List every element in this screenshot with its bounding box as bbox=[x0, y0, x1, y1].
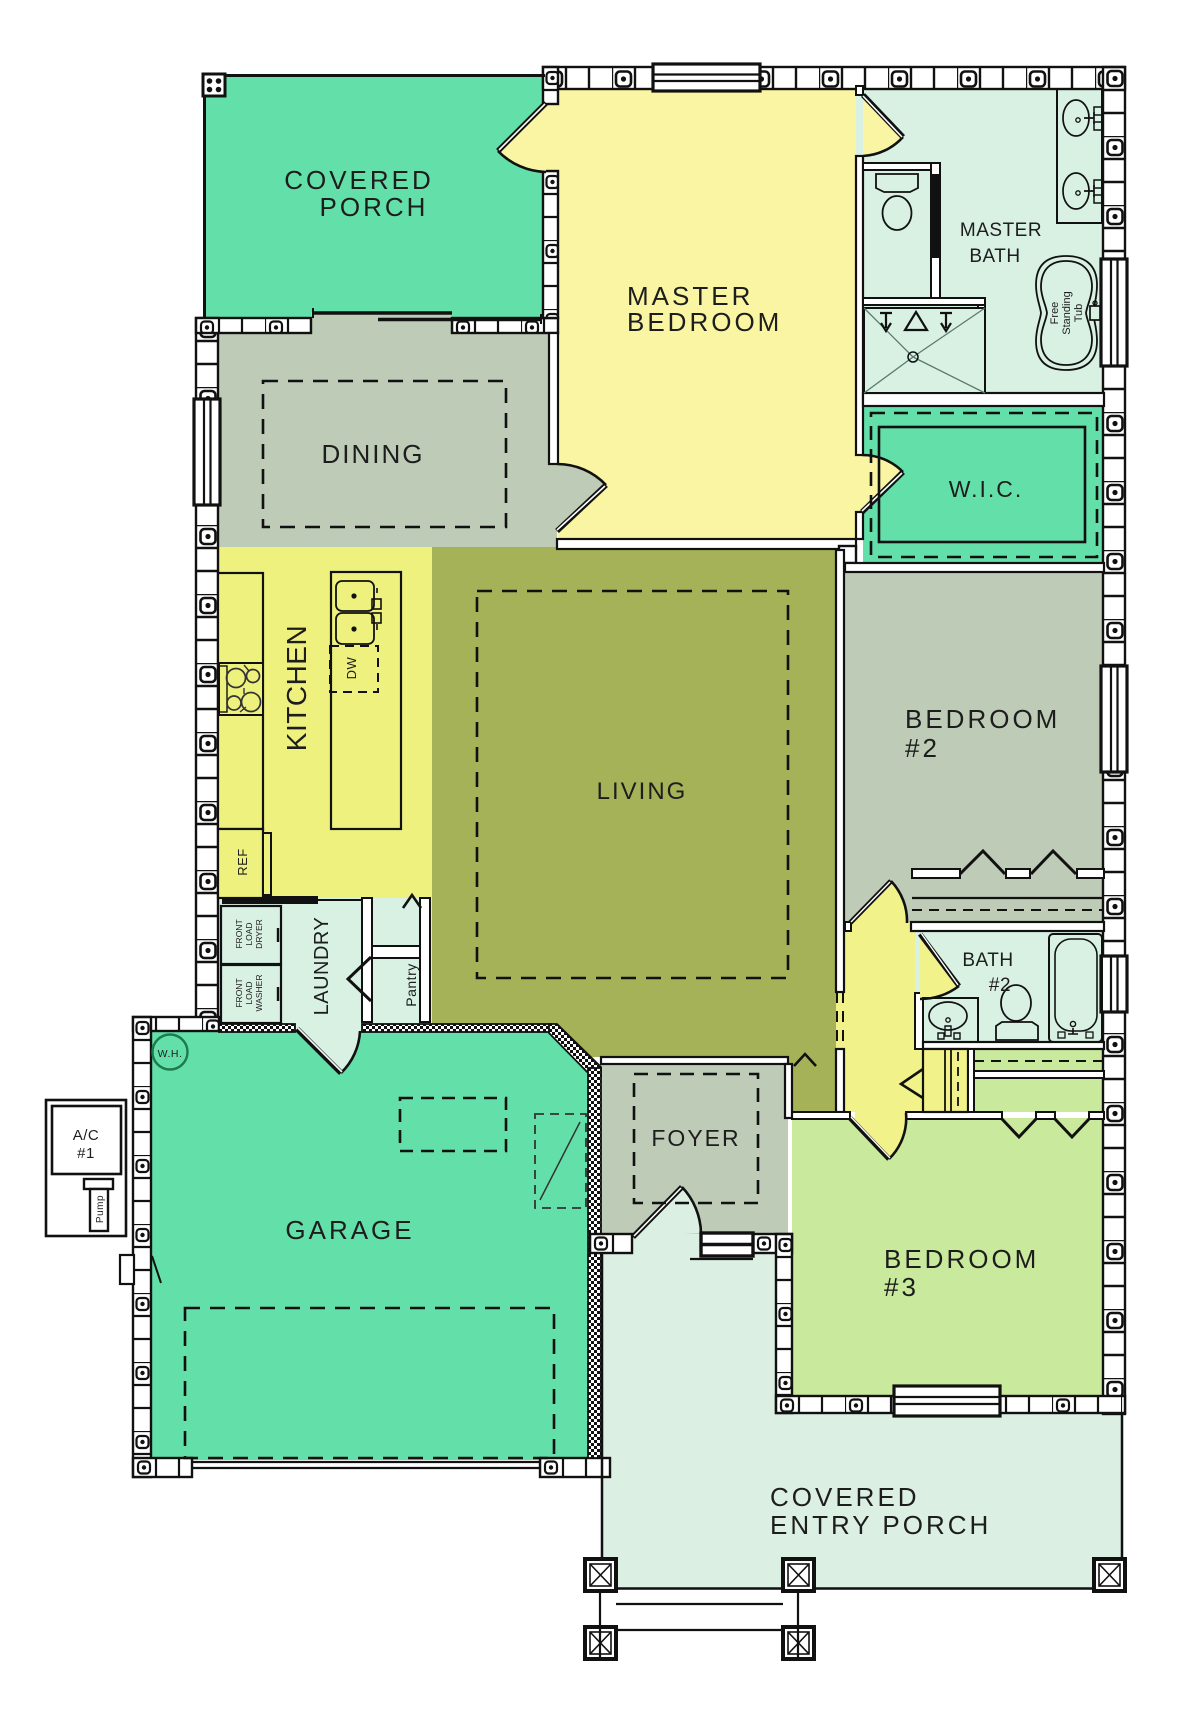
svg-text:DRYER: DRYER bbox=[254, 919, 264, 949]
svg-text:LOAD: LOAD bbox=[244, 922, 254, 945]
svg-text:LIVING: LIVING bbox=[597, 778, 688, 805]
svg-text:KITCHEN: KITCHEN bbox=[281, 625, 312, 751]
svg-text:#1: #1 bbox=[77, 1145, 95, 1162]
svg-text:DINING: DINING bbox=[322, 439, 425, 469]
svg-text:BEDROOM: BEDROOM bbox=[627, 307, 782, 337]
svg-text:REF: REF bbox=[235, 848, 250, 876]
svg-text:WASHER: WASHER bbox=[254, 975, 264, 1012]
svg-text:Tub: Tub bbox=[1073, 304, 1085, 323]
svg-text:BEDROOM: BEDROOM bbox=[884, 1244, 1039, 1274]
svg-text:Standing: Standing bbox=[1061, 291, 1073, 334]
svg-text:COVERED: COVERED bbox=[770, 1482, 920, 1512]
svg-text:Pump: Pump bbox=[95, 1195, 106, 1223]
svg-text:A/C: A/C bbox=[73, 1127, 100, 1144]
svg-text:BEDROOM: BEDROOM bbox=[905, 704, 1060, 734]
svg-text:DW: DW bbox=[344, 656, 359, 679]
svg-text:#2: #2 bbox=[989, 975, 1011, 996]
svg-text:PORCH: PORCH bbox=[320, 192, 429, 222]
svg-text:FRONT: FRONT bbox=[234, 919, 244, 948]
svg-text:ENTRY PORCH: ENTRY PORCH bbox=[770, 1510, 991, 1540]
svg-text:BATH: BATH bbox=[969, 246, 1020, 267]
svg-text:FRONT: FRONT bbox=[234, 978, 244, 1007]
svg-text:Free: Free bbox=[1049, 302, 1061, 325]
svg-text:#2: #2 bbox=[905, 733, 940, 763]
svg-text:GARAGE: GARAGE bbox=[285, 1215, 414, 1245]
svg-text:W.H.: W.H. bbox=[158, 1048, 183, 1060]
svg-text:FOYER: FOYER bbox=[651, 1125, 740, 1151]
svg-text:LOAD: LOAD bbox=[244, 981, 254, 1004]
svg-text:COVERED: COVERED bbox=[284, 165, 434, 195]
svg-text:#3: #3 bbox=[884, 1272, 919, 1302]
svg-text:W.I.C.: W.I.C. bbox=[949, 476, 1024, 502]
svg-text:MASTER: MASTER bbox=[960, 220, 1042, 241]
svg-text:LAUNDRY: LAUNDRY bbox=[311, 917, 333, 1016]
svg-text:BATH: BATH bbox=[962, 950, 1013, 971]
svg-text:Pantry: Pantry bbox=[403, 963, 419, 1006]
